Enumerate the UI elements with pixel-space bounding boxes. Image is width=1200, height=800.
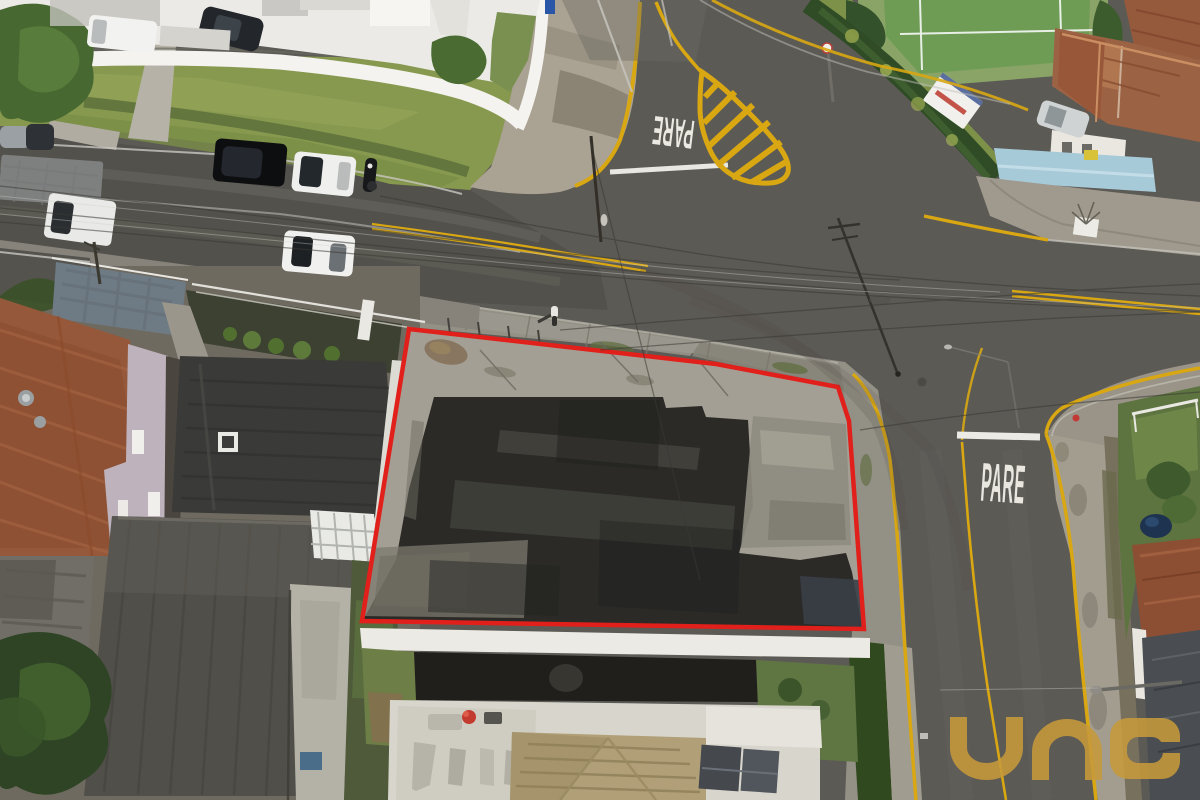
- svg-text:PARE: PARE: [650, 107, 697, 157]
- svg-text:PARE: PARE: [979, 452, 1027, 516]
